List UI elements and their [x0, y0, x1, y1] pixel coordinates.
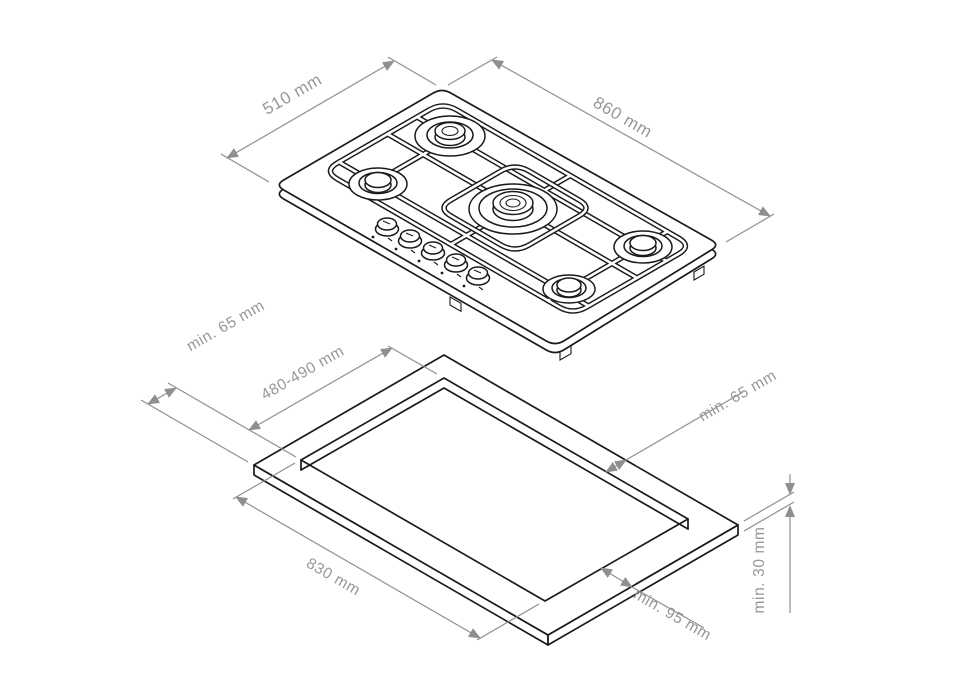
dimension-rear-clearance: min. 65 mm	[606, 367, 780, 472]
dim-label-front-clearance: min. 95 mm	[630, 586, 714, 644]
burner-front-left	[349, 168, 407, 200]
dim-label-rear-clearance: min. 65 mm	[696, 367, 780, 425]
burner-front-right	[543, 275, 595, 303]
diagram-page: 510 mm 860 mm min. 65 mm 48	[0, 0, 957, 691]
dim-label-hob-width: 860 mm	[590, 93, 656, 142]
dim-label-side-clearance: min. 65 mm	[184, 297, 268, 355]
hob-drawing: 510 mm 860 mm	[221, 57, 774, 360]
burner-back-right	[614, 231, 672, 263]
dimension-worktop-thickness: min. 30 mm	[744, 474, 794, 613]
dim-label-hob-depth: 510 mm	[259, 70, 325, 119]
burner-center-wok	[469, 184, 557, 234]
burner-back-left	[415, 116, 485, 156]
dim-label-cutout-width: 830 mm	[303, 555, 363, 600]
technical-drawing: 510 mm 860 mm min. 65 mm 48	[0, 0, 957, 691]
dim-label-cutout-depth: 480-490 mm	[258, 342, 347, 403]
dim-label-worktop-thickness: min. 30 mm	[751, 527, 768, 614]
worktop-drawing: min. 65 mm 480-490 mm min. 65 mm 830 mm …	[141, 297, 794, 645]
